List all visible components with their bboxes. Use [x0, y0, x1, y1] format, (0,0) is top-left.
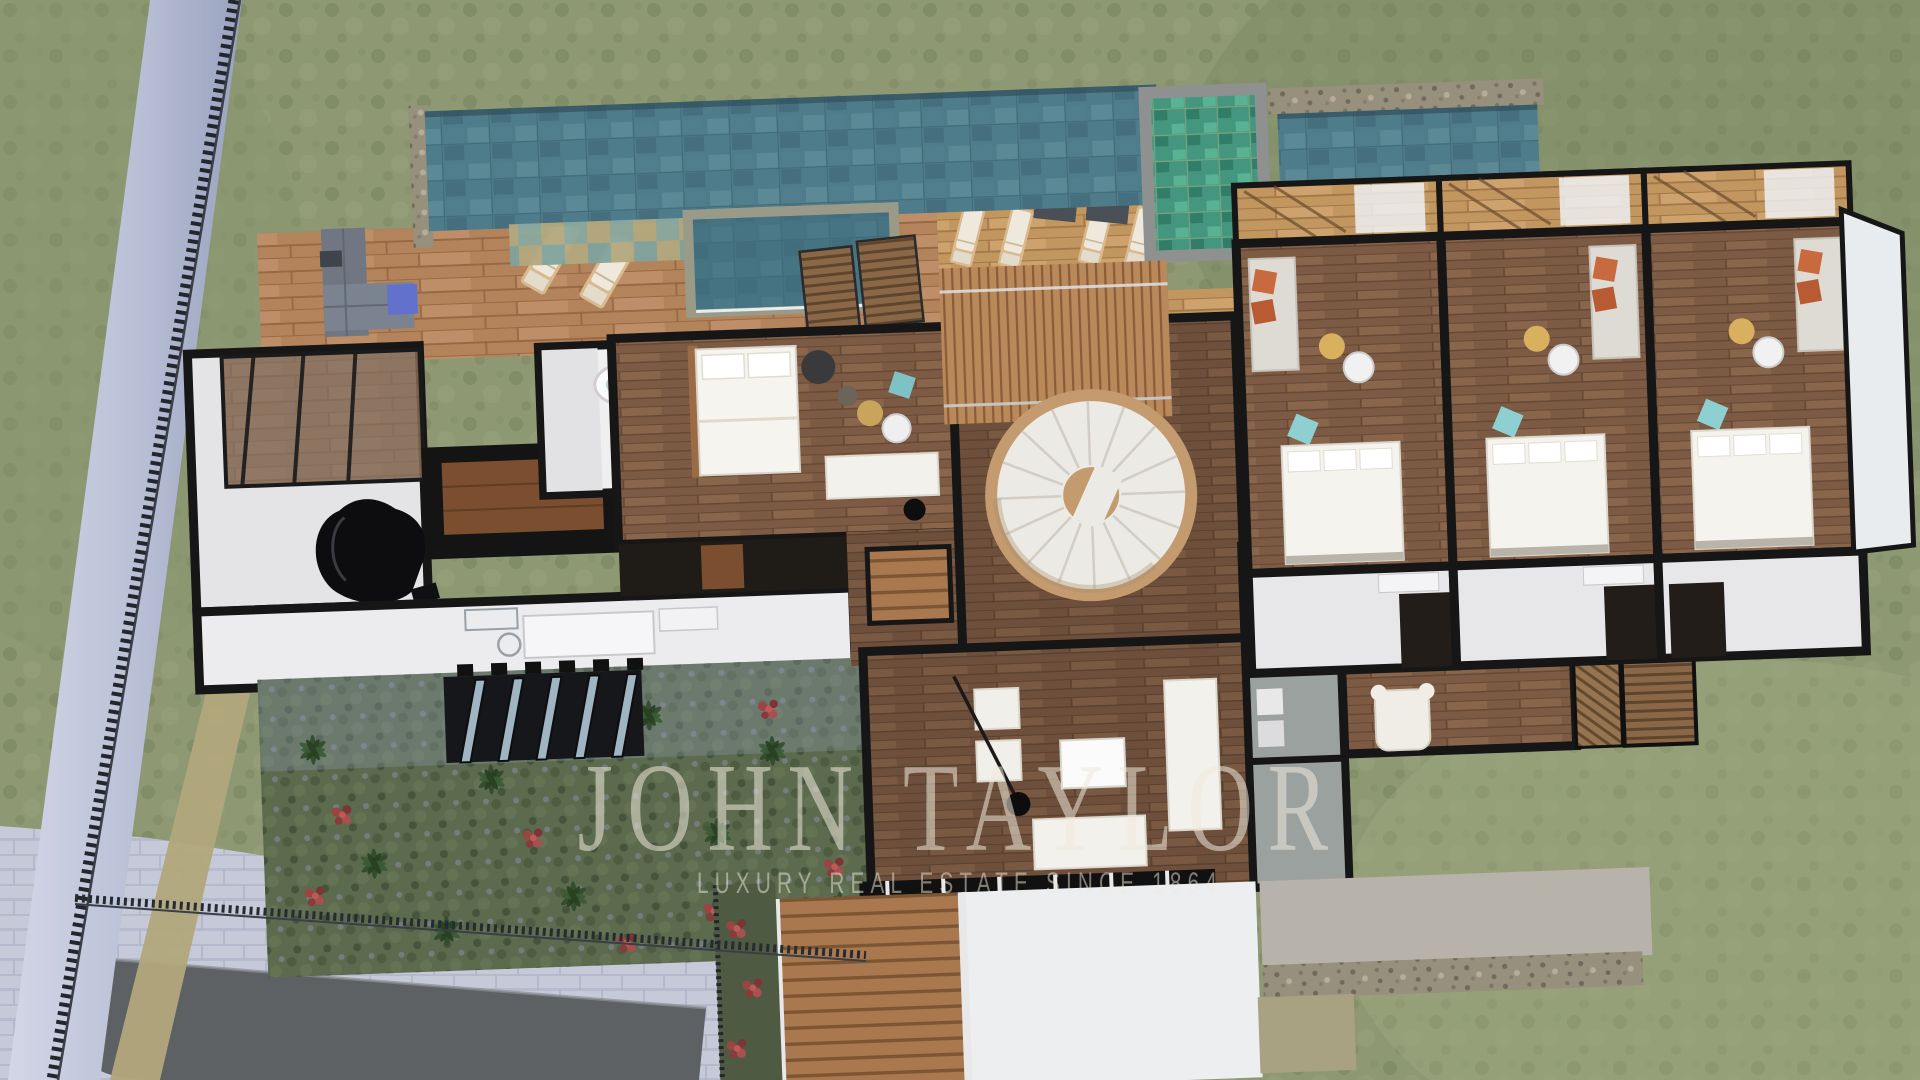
- white-side-table: [882, 414, 911, 443]
- straight-stairs: [867, 546, 952, 623]
- wardrobe-door: [701, 544, 745, 590]
- villa-aerial-render: JOHN TAYLOR LUXURY REAL ESTATE SINCE 186…: [0, 0, 1920, 1080]
- bedroom-3: [1644, 163, 1867, 658]
- wardrobe-3: [1669, 582, 1727, 658]
- bed-1: [1282, 442, 1404, 564]
- right-outer-wall: [1841, 207, 1914, 552]
- kitchen-bench: [659, 607, 718, 631]
- living-armchair: [974, 688, 1019, 730]
- bedroom-2: [1439, 171, 1662, 666]
- washer: [1256, 688, 1283, 715]
- blue-side-table: [387, 284, 418, 315]
- white-terrace: [962, 881, 1263, 1080]
- master-bed: [687, 342, 800, 478]
- glazed-roof: [222, 350, 425, 487]
- wingback-chair: [1370, 683, 1436, 751]
- wardrobe-2: [1604, 584, 1662, 660]
- wood-stairs: [772, 892, 973, 1080]
- bed-3: [1691, 427, 1813, 549]
- planter-strip: [713, 883, 782, 1080]
- watermark-tagline: LUXURY REAL ESTATE SINCE 1864: [697, 867, 1223, 900]
- bedroom-sofa: [826, 453, 939, 499]
- watermark: JOHN TAYLOR LUXURY REAL ESTATE SINCE 186…: [578, 739, 1343, 900]
- kitchen-island: [523, 611, 654, 658]
- shower-area: [541, 348, 602, 492]
- bedroom-1: [1234, 178, 1457, 673]
- bed-2: [1486, 434, 1608, 556]
- watermark-brand: JOHN TAYLOR: [578, 739, 1343, 878]
- tan-pad: [1258, 994, 1357, 1073]
- wardrobe-1: [1399, 592, 1457, 668]
- deck-tray: [320, 250, 343, 267]
